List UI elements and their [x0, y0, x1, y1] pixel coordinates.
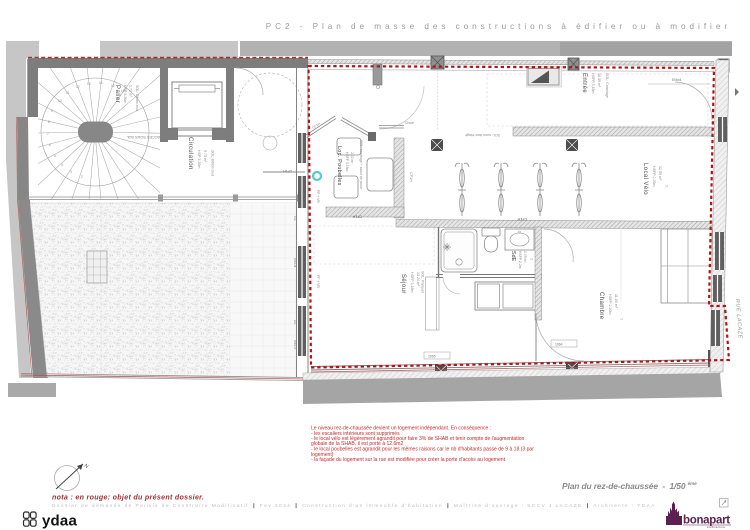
- svg-text:EMd4: EMd4: [672, 78, 681, 82]
- svg-text:PF + VR: PF + VR: [316, 190, 320, 203]
- svg-text:MED3: MED3: [293, 340, 297, 350]
- svg-text:PC2 - Plan de masse des constr: PC2 - Plan de masse des constructions à …: [266, 22, 731, 31]
- svg-text:SOL: sous face étagé: SOL: sous face étagé: [465, 133, 500, 137]
- svg-text:HSFP 2.25m: HSFP 2.25m: [652, 166, 656, 187]
- svg-text:4: 4: [61, 163, 63, 167]
- svg-text:Plan du rez-de-chaussée - 1/: Plan du rez-de-chaussée - 1/50 ème: [562, 481, 697, 491]
- svg-text:ACCES SOUS SOL: ACCES SOUS SOL: [126, 135, 160, 139]
- svg-text:13.24 m²: 13.24 m²: [416, 272, 420, 287]
- svg-text:HSFP 3.18m: HSFP 3.18m: [345, 152, 349, 172]
- svg-text:2.09 m²: 2.09 m²: [523, 251, 527, 263]
- svg-text:HSP 3.20m: HSP 3.20m: [197, 150, 201, 168]
- svg-text:HSFP 2.20m: HSFP 2.20m: [608, 294, 612, 315]
- svg-text:18.39 m²: 18.39 m²: [597, 73, 601, 88]
- svg-text:CF1H: CF1H: [283, 169, 292, 173]
- svg-text:PF + VR: PF + VR: [316, 275, 320, 288]
- svg-text:2.02 m²: 2.02 m²: [350, 152, 354, 164]
- svg-text:11: 11: [66, 91, 70, 95]
- svg-text:Entrée: Entrée: [581, 73, 587, 93]
- svg-text:8: 8: [48, 120, 50, 124]
- svg-text:10: 10: [58, 99, 62, 103]
- svg-text:1.72 m²: 1.72 m²: [129, 85, 133, 98]
- svg-text:HSFP 2.2m: HSFP 2.2m: [518, 251, 522, 269]
- svg-text:architecture: architecture: [707, 525, 726, 529]
- svg-text:Loc. Poubelles: Loc. Poubelles: [336, 146, 342, 186]
- svg-text:9: 9: [51, 109, 53, 113]
- svg-text:CF1H: CF1H: [517, 217, 527, 221]
- svg-text:SOL: Béton brut: SOL: Béton brut: [211, 150, 215, 176]
- svg-text:GC: GC: [293, 216, 297, 222]
- svg-text:9.73 m²: 9.73 m²: [203, 150, 207, 163]
- svg-text:Local Vélo: Local Vélo: [642, 163, 648, 195]
- svg-text:SOL: carrelage + sabot de poul: SOL: carrelage + sabot de poule: [359, 140, 363, 189]
- svg-text:6: 6: [49, 143, 51, 147]
- svg-text:CF1H: CF1H: [352, 215, 362, 219]
- svg-text:·: ·: [269, 142, 270, 146]
- svg-text:14: 14: [99, 81, 103, 85]
- svg-text:SdE: SdE: [510, 251, 516, 262]
- svg-text:SOL: Béton brut: SOL: Béton brut: [135, 85, 139, 111]
- svg-text:Circulation: Circulation: [187, 137, 193, 170]
- svg-text:5: 5: [54, 154, 56, 158]
- svg-text:DC: DC: [293, 320, 297, 325]
- svg-text:ydaa: ydaa: [42, 513, 77, 530]
- svg-text:- le local poubelles est agran: - le local poubelles est agrandit pour l…: [311, 447, 534, 453]
- svg-text:1964: 1964: [555, 342, 563, 346]
- svg-text:SOL: Parquet: SOL: Parquet: [421, 271, 425, 293]
- svg-text:12.59 m²: 12.59 m²: [658, 166, 662, 181]
- svg-text:Chute: Chute: [405, 121, 414, 125]
- svg-text:Dossier de demande de Permis d: Dossier de demande de Permis de Construi…: [52, 503, 656, 509]
- svg-text:SOL: Carrelage: SOL: Carrelage: [605, 73, 609, 98]
- svg-text:N: N: [83, 463, 90, 470]
- svg-text:- la façade du logement sur la: - la façade du logement sur la rue est m…: [311, 457, 506, 463]
- svg-text:7: 7: [47, 132, 49, 136]
- svg-text:1965: 1965: [428, 354, 436, 358]
- svg-text:3: 3: [70, 170, 72, 174]
- svg-text:nota : en rouge: objet du prés: nota : en rouge: objet du présent dossie…: [52, 494, 204, 502]
- svg-text:13: 13: [87, 82, 91, 86]
- svg-text:T: T: [619, 318, 623, 320]
- svg-text:Séjour: Séjour: [400, 274, 406, 294]
- svg-text:Palier: Palier: [114, 85, 120, 103]
- svg-text:T: T: [664, 185, 668, 187]
- svg-text:12: 12: [76, 85, 80, 89]
- svg-text:T: T: [529, 258, 533, 260]
- svg-text:2: 2: [81, 175, 83, 179]
- svg-text:MED4: MED4: [293, 258, 297, 268]
- svg-text:HSP 3.30m: HSP 3.30m: [123, 85, 127, 103]
- svg-text:Chambre: Chambre: [598, 292, 604, 320]
- svg-text:HSFP 3.18m: HSFP 3.18m: [410, 272, 414, 293]
- svg-text:11.05 m²: 11.05 m²: [614, 294, 618, 309]
- svg-text:CF1H: CF1H: [409, 172, 413, 182]
- svg-text:RUE LACAZE: RUE LACAZE: [734, 299, 743, 339]
- svg-text:HSFP 3.18m: HSFP 3.18m: [591, 73, 595, 94]
